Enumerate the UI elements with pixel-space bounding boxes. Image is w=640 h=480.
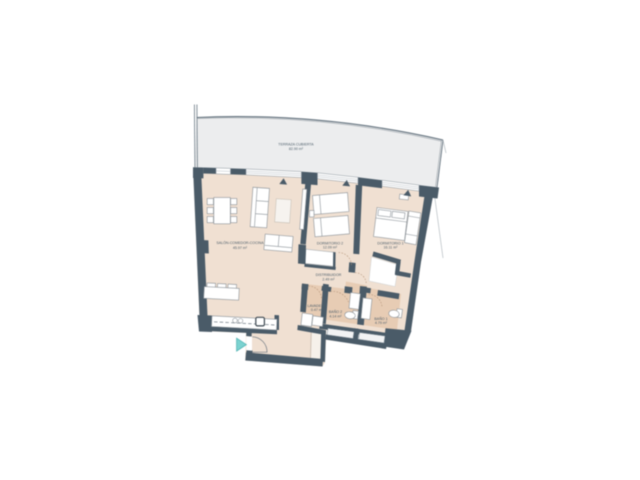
svg-text:0.47 m²: 0.47 m² — [311, 308, 324, 312]
svg-text:12.09 m²: 12.09 m² — [323, 246, 338, 250]
svg-text:DISTRIBUIDOR: DISTRIBUIDOR — [316, 273, 342, 277]
svg-text:BAÑO 1: BAÑO 1 — [374, 316, 387, 321]
svg-text:BAÑO 2: BAÑO 2 — [329, 309, 342, 314]
svg-text:SALÓN-COMEDOR-COCINA: SALÓN-COMEDOR-COCINA — [216, 240, 264, 245]
svg-text:2.49 m²: 2.49 m² — [322, 277, 335, 281]
svg-text:DORMITORIO 1: DORMITORIO 1 — [377, 241, 403, 245]
svg-text:16.11 m²: 16.11 m² — [384, 246, 399, 250]
svg-text:4.79 m²: 4.79 m² — [375, 321, 388, 325]
svg-text:4.14 m²: 4.14 m² — [329, 315, 342, 319]
svg-text:45.97 m²: 45.97 m² — [233, 246, 248, 250]
svg-text:82.90 m²: 82.90 m² — [289, 147, 304, 151]
svg-text:TERRAZA CUBIERTA: TERRAZA CUBIERTA — [278, 143, 314, 147]
svg-text:LAVADERO: LAVADERO — [307, 304, 326, 308]
svg-text:DORMITORIO 2: DORMITORIO 2 — [317, 241, 343, 245]
